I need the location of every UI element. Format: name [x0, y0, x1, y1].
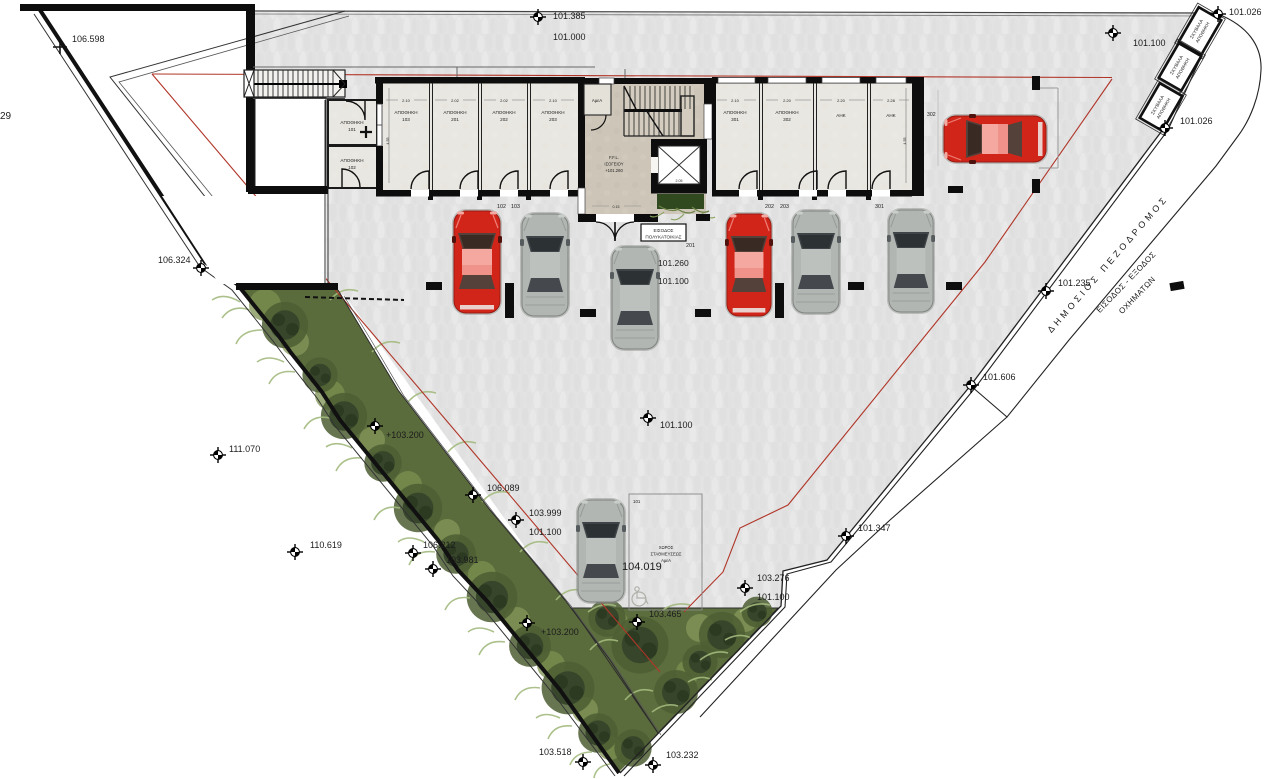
svg-text:203: 203	[549, 117, 557, 122]
svg-text:110.619: 110.619	[310, 540, 342, 550]
svg-text:ΑμεΑ: ΑμεΑ	[661, 558, 671, 563]
svg-text:106.324: 106.324	[158, 255, 191, 265]
svg-text:ΑΠΟΘΗΚΗ: ΑΠΟΘΗΚΗ	[394, 110, 417, 115]
svg-text:103.999: 103.999	[529, 508, 562, 518]
svg-text:ΑΗΚ: ΑΗΚ	[836, 113, 846, 118]
svg-text:102: 102	[348, 165, 356, 170]
svg-text:101.100: 101.100	[757, 592, 790, 602]
svg-text:ΑΠΟΘΗΚΗ: ΑΠΟΘΗΚΗ	[541, 110, 564, 115]
svg-text:ΑμεΑ: ΑμεΑ	[592, 98, 602, 103]
svg-text:106.089: 106.089	[487, 483, 520, 493]
svg-text:+103.200: +103.200	[541, 627, 579, 637]
svg-text:103: 103	[511, 204, 520, 210]
svg-text:ΧΩΡΟΣ: ΧΩΡΟΣ	[659, 545, 674, 550]
svg-text:ΑΠΟΘΗΚΗ: ΑΠΟΘΗΚΗ	[340, 120, 363, 125]
svg-text:106.212: 106.212	[423, 540, 456, 550]
svg-text:+103.200: +103.200	[386, 430, 424, 440]
svg-text:103.465: 103.465	[649, 609, 682, 619]
svg-text:2.10: 2.10	[549, 98, 558, 103]
svg-text:202: 202	[500, 117, 508, 122]
svg-text:301: 301	[875, 204, 884, 210]
svg-text:2.02: 2.02	[500, 98, 509, 103]
svg-text:2.20: 2.20	[837, 98, 846, 103]
svg-text:0.15: 0.15	[613, 205, 620, 209]
svg-text:2.20: 2.20	[783, 98, 792, 103]
svg-text:ΣΤΑΘΜΕΥΣΕΩΣ: ΣΤΑΘΜΕΥΣΕΩΣ	[651, 552, 682, 557]
svg-text:103.232: 103.232	[666, 750, 699, 760]
svg-text:106.598: 106.598	[72, 34, 105, 44]
svg-text:101.385: 101.385	[553, 11, 586, 21]
svg-text:101.100: 101.100	[529, 527, 562, 537]
svg-text:ΑΗΚ: ΑΗΚ	[886, 113, 896, 118]
svg-text:ΑΠΟΘΗΚΗ: ΑΠΟΘΗΚΗ	[723, 110, 746, 115]
svg-text:111.070: 111.070	[229, 444, 260, 454]
svg-text:2.10: 2.10	[731, 98, 740, 103]
svg-text:29: 29	[0, 111, 12, 122]
svg-text:101.026: 101.026	[1229, 7, 1262, 17]
svg-text:+101.260: +101.260	[605, 168, 623, 173]
svg-text:103.276: 103.276	[757, 573, 790, 583]
svg-text:ΑΠΟΘΗΚΗ: ΑΠΟΘΗΚΗ	[492, 110, 515, 115]
svg-text:101.000: 101.000	[553, 32, 586, 42]
svg-text:ΕΙΣΟΔΟΣ: ΕΙΣΟΔΟΣ	[653, 228, 673, 233]
svg-text:201: 201	[451, 117, 459, 122]
svg-text:2.10: 2.10	[402, 98, 411, 103]
svg-text:101.100: 101.100	[1133, 38, 1166, 48]
svg-text:301: 301	[731, 117, 739, 122]
svg-text:ΑΠΟΘΗΚΗ: ΑΠΟΘΗΚΗ	[340, 158, 363, 163]
svg-text:ΑΠΟΘΗΚΗ: ΑΠΟΘΗΚΗ	[443, 110, 466, 115]
svg-text:101.026: 101.026	[1180, 116, 1213, 126]
svg-text:ΠΟΛΥΚΑΤΟΙΚΙΑΣ: ΠΟΛΥΚΑΤΟΙΚΙΑΣ	[645, 235, 681, 240]
svg-text:101.606: 101.606	[983, 372, 1016, 382]
svg-text:101.347: 101.347	[858, 523, 891, 533]
svg-text:101.100: 101.100	[660, 420, 693, 430]
svg-text:302: 302	[927, 112, 936, 118]
svg-text:4.55: 4.55	[903, 138, 907, 145]
svg-text:103.981: 103.981	[446, 555, 479, 565]
svg-text:101.100: 101.100	[658, 276, 689, 286]
svg-text:202: 202	[765, 204, 774, 210]
svg-text:ΑΠΟΘΗΚΗ: ΑΠΟΘΗΚΗ	[775, 110, 798, 115]
svg-text:2.28: 2.28	[887, 98, 896, 103]
svg-text:101: 101	[348, 127, 356, 132]
svg-text:F.F.L.: F.F.L.	[609, 155, 619, 160]
svg-text:102: 102	[497, 204, 506, 210]
svg-text:103.518: 103.518	[539, 747, 572, 757]
svg-text:2.05: 2.05	[676, 179, 683, 183]
svg-text:302: 302	[783, 117, 791, 122]
svg-text:203: 203	[780, 204, 789, 210]
svg-text:103: 103	[402, 117, 410, 122]
svg-text:ΙΣΟΓΕΙΟΥ: ΙΣΟΓΕΙΟΥ	[604, 162, 623, 167]
svg-text:201: 201	[686, 243, 695, 249]
svg-text:101.260: 101.260	[658, 258, 689, 268]
svg-text:104.019: 104.019	[622, 561, 662, 573]
svg-text:101: 101	[633, 499, 641, 504]
svg-text:4.55: 4.55	[386, 138, 390, 145]
svg-text:2.02: 2.02	[451, 98, 460, 103]
